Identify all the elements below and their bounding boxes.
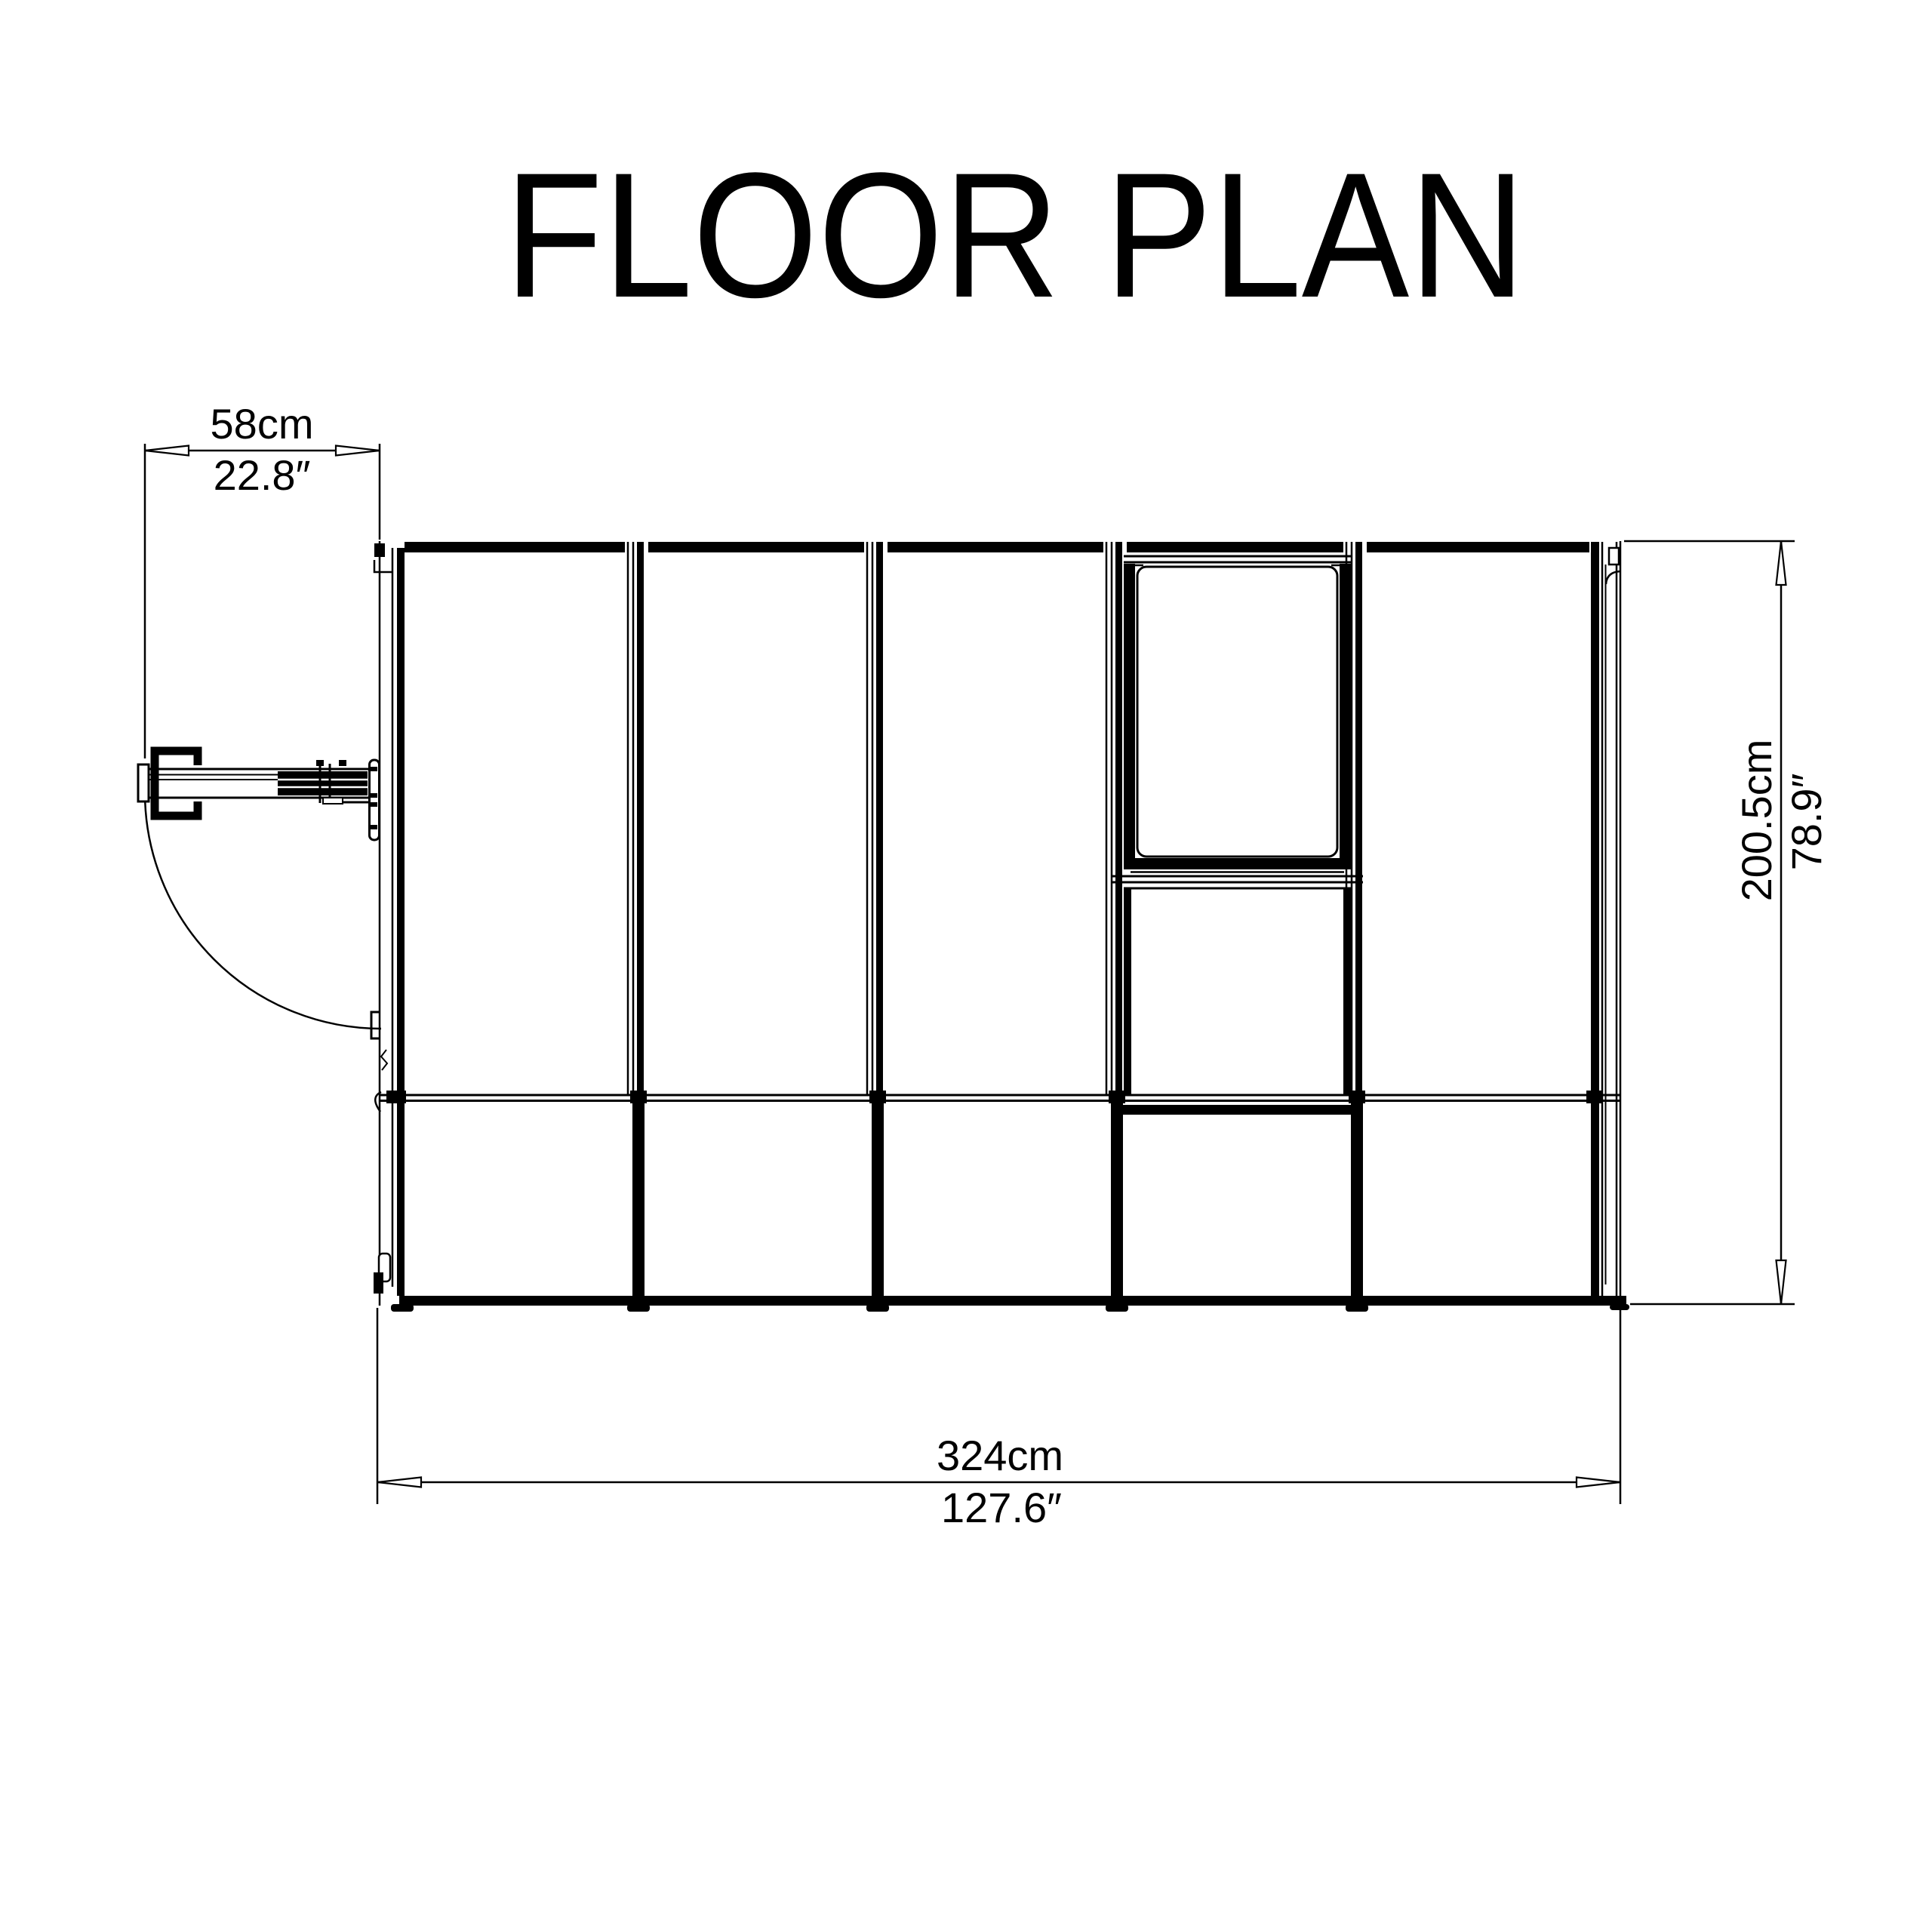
bottom-wall [391, 1296, 1629, 1312]
left-wall [374, 541, 405, 1306]
mullion-3 [1106, 542, 1122, 1094]
arrowhead-right-icon [1577, 1478, 1620, 1487]
door-swing-arc [145, 792, 381, 1029]
arrowhead-left-icon [377, 1478, 421, 1487]
base-foot [866, 1304, 889, 1312]
width-metric-label: 200.5cm [1733, 740, 1780, 902]
base-foot [391, 1304, 414, 1312]
right-top-corner-detail [1606, 571, 1620, 584]
door-width-imperial-label: 22.8″ [214, 451, 311, 499]
vent-frame-right [1340, 564, 1351, 869]
base-foot [1106, 1304, 1128, 1312]
rail-connector [386, 1091, 406, 1103]
vent-frame-bottom [1124, 858, 1351, 869]
base-foot [627, 1304, 650, 1312]
top-wall [405, 542, 1589, 552]
rail-connector [1586, 1091, 1601, 1103]
arrowhead-up-icon [1777, 541, 1786, 585]
base-foot [1346, 1304, 1368, 1312]
lower-sash [1124, 888, 1351, 1094]
mullion-2 [867, 542, 883, 1094]
roof-vent-window [1111, 556, 1363, 1115]
entry-door [138, 751, 387, 1112]
glazing-mullions-upper [628, 542, 1362, 1094]
vent-panel [1137, 567, 1337, 857]
arrowhead-down-icon [1777, 1260, 1786, 1304]
page-title: FLOOR PLAN [505, 136, 1526, 335]
hinge-plate [370, 760, 380, 840]
horizontal-rail [380, 1091, 1620, 1103]
door-width-metric-label: 58cm [211, 400, 314, 448]
door-end-cap [138, 764, 149, 801]
dimension-door-width: 58cm 22.8″ [145, 400, 380, 758]
arrowhead-right-icon [336, 446, 380, 456]
length-metric-label: 324cm [937, 1432, 1063, 1479]
arrowhead-left-icon [145, 446, 189, 456]
dimension-width: 200.5cm 78.9″ [1624, 541, 1830, 1304]
right-wall [1591, 541, 1620, 1306]
floor-plan-drawing: FLOOR PLAN [0, 0, 1932, 1932]
door-leaf [138, 764, 370, 801]
mullion-1 [628, 542, 644, 1094]
dimension-length: 324cm 127.6″ [377, 1308, 1620, 1531]
length-imperial-label: 127.6″ [941, 1484, 1062, 1531]
bay4-lower-header [1123, 1105, 1363, 1115]
floor-plan-page: FLOOR PLAN [0, 0, 1932, 1932]
vent-frame-left [1124, 564, 1135, 869]
glazing-mullions-lower [632, 1101, 1363, 1296]
building-outline [374, 541, 1629, 1312]
left-top-corner-detail [374, 543, 385, 557]
width-imperial-label: 78.9″ [1783, 774, 1830, 871]
